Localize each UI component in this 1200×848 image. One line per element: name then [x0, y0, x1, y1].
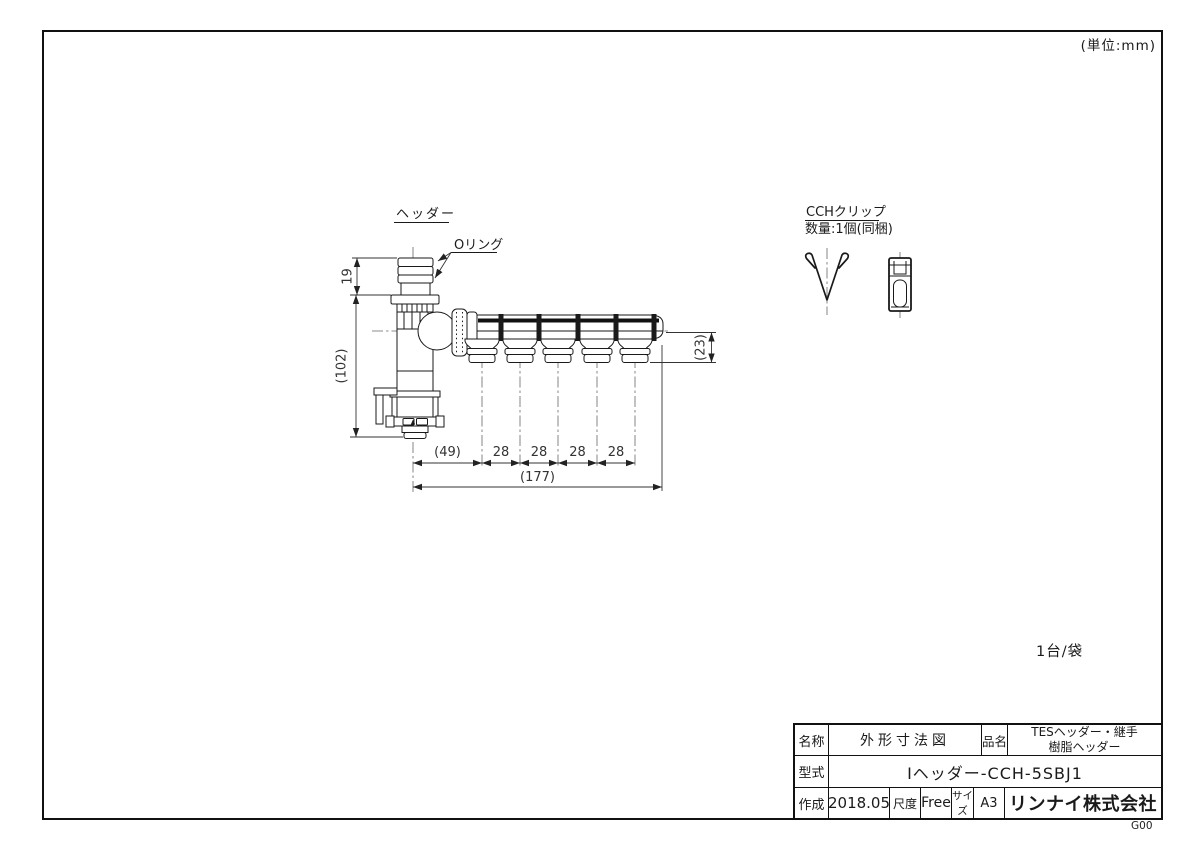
- title-block: 名称 外形寸法図 品名 TESヘッダー・継手 樹脂ヘッダー 型式 Iヘッダー-C…: [793, 723, 1163, 820]
- size-label: サイズ: [952, 788, 974, 818]
- oring-ribs: [398, 258, 433, 283]
- item-value-line2: 樹脂ヘッダー: [1048, 740, 1120, 755]
- model-value: Iヘッダー-CCH-5SBJ1: [829, 756, 1161, 787]
- units-note: (単位:mm): [1081, 34, 1156, 54]
- cch-clip-view: [806, 253, 911, 311]
- dim-overall-length: (177): [520, 470, 555, 485]
- clip-quantity: 数量:1個(同梱): [805, 222, 893, 237]
- scale-value: Free: [921, 788, 952, 818]
- title-block-row-meta: 作成 2018.05 尺度 Free サイズ A3 リンナイ株式会社: [795, 788, 1161, 818]
- item-value: TESヘッダー・継手 樹脂ヘッダー: [1008, 725, 1161, 755]
- item-value-line1: TESヘッダー・継手: [1031, 725, 1138, 740]
- drain-cap: [404, 433, 426, 439]
- technical-drawing: ヘッダー Oリング CCHクリップ 数量:1個(同梱) 19 (102) (23…: [0, 0, 1200, 848]
- title-block-row-model: 型式 Iヘッダー-CCH-5SBJ1: [795, 756, 1161, 788]
- dim-inlet-height: 19: [341, 268, 356, 285]
- name-label: 名称: [795, 725, 829, 755]
- created-value: 2018.05: [829, 788, 890, 818]
- packaging-note: 1台/袋: [1036, 640, 1083, 661]
- size-value: A3: [974, 788, 1005, 818]
- dim-pitch-3: 28: [569, 445, 586, 460]
- mount-bracket: [374, 388, 397, 395]
- clip-side-view: [889, 258, 911, 311]
- title-block-row-name: 名称 外形寸法図 品名 TESヘッダー・継手 樹脂ヘッダー: [795, 725, 1161, 756]
- clip-title: CCHクリップ: [806, 205, 886, 220]
- dim-pitch-1: 28: [493, 445, 510, 460]
- outlets: [465, 339, 652, 363]
- dim-first-pitch: (49): [434, 445, 461, 460]
- elbow-joint: [418, 312, 456, 350]
- inlet-flange: [391, 295, 439, 304]
- dim-overall-height: (102): [335, 349, 350, 384]
- oring-label: Oリング: [454, 238, 503, 253]
- scale-label: 尺度: [890, 788, 921, 818]
- valve-assembly: [374, 388, 444, 439]
- dim-outlet-drop: (23): [694, 334, 709, 361]
- dimensions: 19 (102) (23) (49) 28 28 28 28 (177): [335, 258, 717, 491]
- name-value: 外形寸法図: [829, 725, 982, 755]
- manifold-tube: [477, 315, 663, 339]
- model-label: 型式: [795, 756, 829, 787]
- inlet-neck: [401, 283, 430, 295]
- manifold-view: [374, 258, 663, 439]
- oring-leader-arrows: [435, 253, 451, 279]
- item-label: 品名: [982, 725, 1008, 755]
- dim-pitch-4: 28: [608, 445, 625, 460]
- part-label: ヘッダー: [396, 207, 456, 222]
- created-label: 作成: [795, 788, 829, 818]
- doc-code: G00: [1131, 820, 1153, 832]
- dim-pitch-2: 28: [531, 445, 548, 460]
- company-name: リンナイ株式会社: [1005, 788, 1161, 818]
- drawing-sheet: ヘッダー Oリング CCHクリップ 数量:1個(同梱) 19 (102) (23…: [0, 0, 1200, 848]
